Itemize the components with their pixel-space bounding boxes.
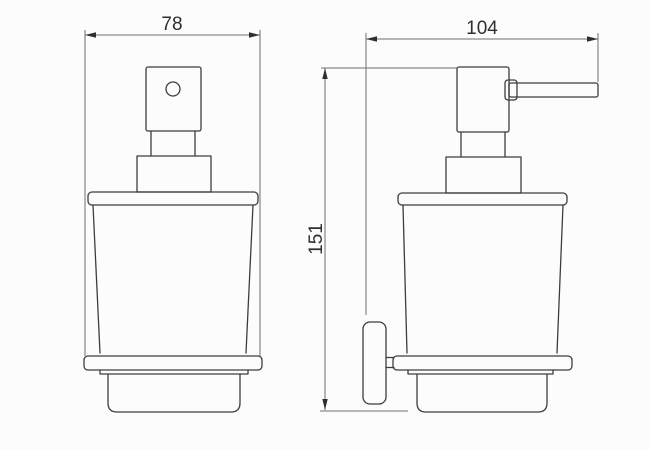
- bottle-body: [93, 205, 253, 353]
- bottle-lid: [88, 192, 258, 205]
- pump-collar: [137, 156, 211, 192]
- pump-head: [457, 67, 509, 132]
- arrowhead-down-icon: [322, 399, 327, 410]
- arrowhead-left-icon: [366, 36, 377, 41]
- side-depth-dimension: 104: [366, 18, 598, 315]
- arrowhead-up-icon: [322, 68, 327, 79]
- front-width-dimension: 78: [85, 14, 260, 356]
- pump-head: [146, 67, 201, 131]
- front-view: 78: [84, 14, 262, 412]
- holder-cup: [417, 374, 547, 412]
- arrowhead-right-icon: [249, 32, 260, 37]
- holder-arm: [393, 356, 572, 370]
- pump-collar: [446, 157, 521, 193]
- arrowhead-left-icon: [85, 32, 96, 37]
- height-dimension-label: 151: [306, 223, 327, 255]
- side-depth-dimension-label: 104: [466, 18, 498, 39]
- arrowhead-right-icon: [587, 36, 598, 41]
- side-view: 104 151: [306, 18, 598, 412]
- holder-cup: [108, 374, 240, 412]
- height-dimension: 151: [306, 68, 457, 411]
- technical-drawing: 78: [0, 0, 650, 450]
- holder-ring: [84, 356, 262, 370]
- pump-spout: [509, 83, 598, 97]
- bottle-body: [403, 205, 563, 353]
- bottle-lid: [398, 193, 567, 205]
- nozzle-hole: [166, 82, 180, 96]
- front-width-dimension-label: 78: [161, 14, 182, 35]
- drawing-canvas: 78: [0, 0, 650, 450]
- pump-neck: [461, 132, 505, 157]
- wall-plate: [363, 322, 386, 404]
- pump-neck: [151, 131, 195, 156]
